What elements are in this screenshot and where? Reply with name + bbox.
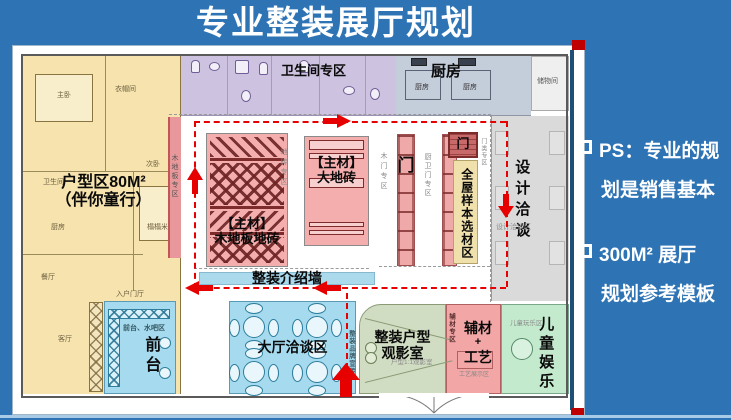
door-label: 门 [448, 137, 478, 152]
material-tag: 【主材】 [191, 217, 303, 232]
note-size: 300M² 展厅 规划参考模板 [578, 240, 730, 306]
viewing-room-line2: 观影室 [359, 345, 446, 361]
slide: 专业整装展厅规划 主卧 衣帽间 次卧 卫生间 厨房 榻榻米 餐厅 客厅 入户门厅… [0, 0, 731, 420]
path-arrow-down-stem [503, 194, 509, 206]
wood-block-label: 【主材】 木地板地砖 [191, 217, 303, 247]
floor-plan: 主卧 衣帽间 次卧 卫生间 厨房 榻榻米 餐厅 客厅 入户门厅 户型区80M² … [12, 45, 585, 415]
page-title: 专业整装展厅规划 [0, 2, 672, 44]
path-line-entrance [346, 293, 348, 369]
path-arrow-up-icon [187, 167, 203, 180]
red-corner-mark [572, 40, 585, 50]
viewing-room-label: 整装户型 观影室 [359, 329, 446, 361]
path-line-left [194, 121, 196, 289]
path-arrow-left-icon [185, 281, 199, 295]
aux-line2: 工艺 [457, 349, 499, 365]
square-bullet-icon [578, 140, 592, 154]
aux-zone-label: 辅材 + 工艺 [457, 320, 499, 365]
door-label: 门 [394, 156, 418, 176]
tile-block-label: 【主材】 大地砖 [301, 156, 372, 186]
path-arrow-right-icon [337, 114, 351, 128]
navy-edge-bar [570, 50, 574, 410]
viewing-room-line1: 整装户型 [359, 329, 446, 345]
note-ps-line1: PS：专业的规 [599, 136, 719, 163]
bottom-edge-line [0, 415, 731, 418]
path-arrow-right-stem [323, 118, 337, 124]
note-size-line2: 规划参考模板 [601, 279, 730, 306]
aux-line1: 辅材 [457, 320, 499, 336]
note-size-line1: 300M² 展厅 [599, 240, 696, 267]
intro-wall-label: 整装介绍墙 [199, 270, 375, 286]
tile-block-name: 大地砖 [301, 171, 372, 186]
path-line-bottom [194, 287, 506, 289]
entrance-arrow-icon [332, 363, 360, 380]
path-arrow-down-icon [498, 206, 514, 218]
sample-zone-label: 全屋样本选材区 [459, 164, 473, 262]
material-tag: 【主材】 [301, 156, 372, 171]
path-arrow-up-stem [192, 180, 198, 194]
square-bullet-icon [578, 244, 592, 258]
entrance-door-icon [373, 397, 495, 414]
hall-zone-label: 大厅洽谈区 [229, 339, 356, 355]
entrance-arrow-stem [340, 379, 352, 397]
note-ps: PS：专业的规 划是销售基本 [578, 136, 730, 202]
note-ps-line2: 划是销售基本 [601, 175, 730, 202]
wood-block-name: 木地板地砖 [191, 232, 303, 247]
aux-plus: + [457, 336, 499, 349]
